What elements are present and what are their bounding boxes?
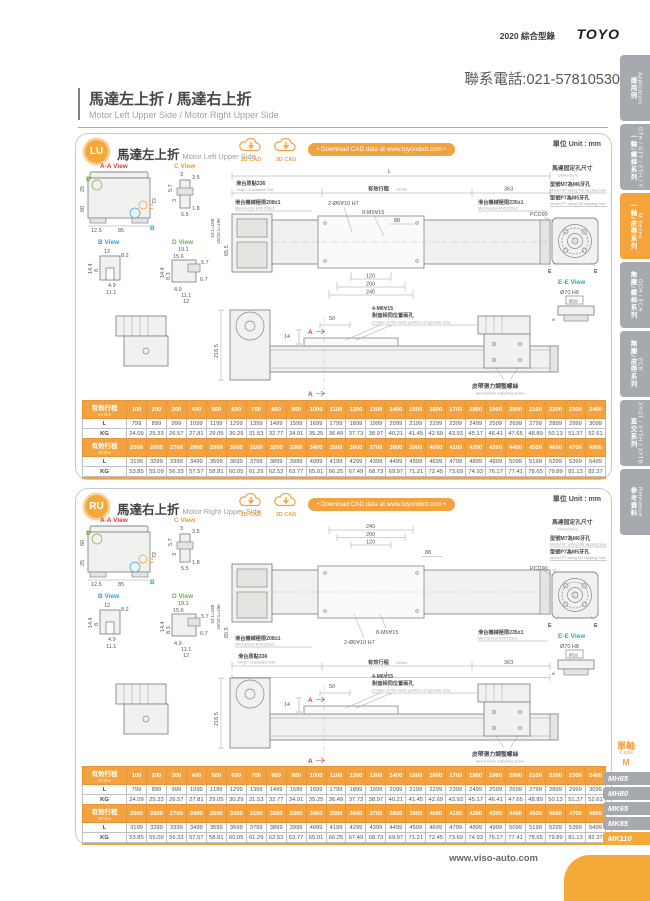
stroke-column-header: 1900 — [486, 767, 506, 785]
stroke-column-header: 2700 — [166, 439, 186, 457]
table-cell: 66.25 — [326, 467, 346, 477]
table-cell: 76.17 — [486, 833, 506, 843]
model-tab-mk65[interactable]: MK65 — [603, 802, 650, 815]
stroke-column-header: 3400 — [306, 805, 326, 823]
c-dim-3: 3 — [180, 172, 183, 178]
hole-callout-1: 2-Ø6∀10 H7 — [328, 200, 359, 207]
stroke-column-header: 1000 — [306, 767, 326, 785]
table-cell: 1799 — [326, 785, 346, 795]
table-cell: 3299 — [146, 823, 166, 833]
stroke-column-header: 1700 — [446, 401, 466, 419]
d-dim-6-7: 6.7 — [200, 277, 208, 283]
stroke-column-header: 1300 — [366, 767, 386, 785]
stroke-column-header: 2500 — [127, 439, 147, 457]
table-cell: 4299 — [346, 457, 366, 467]
stroke-column-header: 4600 — [546, 805, 566, 823]
stroke-column-header: 3800 — [386, 805, 406, 823]
sidebar-tab-ecb[interactable]: 無塵/皮帶系列 ECB — [620, 331, 650, 397]
tab-en-label: Application — [636, 72, 642, 104]
model-tab-mh65[interactable]: MH65 — [603, 772, 650, 785]
sidebar-tab-reference[interactable]: 參考資料 Reference — [620, 469, 650, 535]
stroke-column-header: 3500 — [326, 805, 346, 823]
dim-120: 120 — [366, 274, 375, 280]
stroke-column-header: 4600 — [546, 439, 566, 457]
unit-label: 單位 Unit : mm — [553, 494, 601, 504]
table-cell: 69.97 — [386, 467, 406, 477]
table-cell: 1899 — [346, 785, 366, 795]
table-cell: 57.57 — [186, 467, 206, 477]
table-cell: 1999 — [366, 419, 386, 429]
stroke-column-header: 3900 — [406, 805, 426, 823]
dim-240: 240 — [366, 290, 375, 296]
stroke-column-header: 1800 — [466, 401, 486, 419]
ratio-10-1: 10:1=188 — [210, 218, 215, 238]
table-cell: 40.21 — [386, 795, 406, 805]
dim-240: 240 — [366, 524, 375, 530]
stroke-column-header: 2700 — [166, 805, 186, 823]
table-cell: 63.77 — [286, 833, 306, 843]
table-cell: 42.69 — [426, 429, 446, 439]
table-cell: 5099 — [506, 823, 526, 833]
table-cell: 3799 — [246, 823, 266, 833]
stroke-table: 有效行程Stroke100200300400500600700800900100… — [82, 400, 606, 439]
row-label: KG — [83, 833, 127, 843]
table-cell: 55.09 — [146, 833, 166, 843]
c-view-label: C View — [174, 163, 196, 170]
table-cell: 1899 — [346, 419, 366, 429]
table-cell: 69.97 — [386, 833, 406, 843]
dim-65-5: 65.5 — [224, 245, 230, 256]
stroke-column-header: 3300 — [286, 805, 306, 823]
stroke-column-header: 200 — [146, 767, 166, 785]
d-dim-19-1: 19.1 — [178, 601, 189, 607]
lu-section-panel: LU 馬達左上折Motor Left Upper Side 2D CAD 3D … — [75, 133, 612, 480]
table-cell: 2599 — [486, 785, 506, 795]
stroke-table: 有效行程Stroke250026002700280029003000310032… — [82, 438, 606, 477]
download-cad-pill[interactable]: • Download CAD data at www.toyorobot.com… — [308, 498, 455, 511]
table-cell: 4899 — [466, 823, 486, 833]
table-cell: 31.53 — [246, 795, 266, 805]
dim-50: 50 — [329, 684, 335, 690]
table-cell: 53.85 — [127, 467, 147, 477]
stroke-column-header: 3800 — [386, 439, 406, 457]
table-cell: 77.41 — [506, 467, 526, 477]
row-label: L — [83, 457, 127, 467]
table-cell: 56.33 — [166, 467, 186, 477]
stroke-column-header: 3700 — [366, 439, 386, 457]
stroke-column-header: 2300 — [565, 767, 585, 785]
ru-top-view: 240 200 120 88 8-M6∀15 2-Ø6∀10 H7 — [232, 524, 563, 681]
sidebar-tab-m-series[interactable]: 一軸/皮帶系列 M Series — [620, 193, 650, 259]
table-cell: 3199 — [127, 823, 147, 833]
d-dim-15-6: 15.6 — [173, 608, 184, 614]
mount-title-en: Dimensions — [558, 173, 578, 178]
stroke-column-header: 4100 — [446, 805, 466, 823]
table-cell: 35.25 — [306, 429, 326, 439]
stroke-column-header: 1500 — [406, 767, 426, 785]
b-view: B View 12 8.2 14.4 8 4.9 11.1 — [88, 593, 129, 650]
table-cell: 77.41 — [506, 833, 526, 843]
table-cell: 51.37 — [565, 429, 585, 439]
table-cell: 3399 — [166, 457, 186, 467]
table-cell: 52.61 — [585, 429, 605, 439]
b-view-label: B View — [98, 593, 120, 600]
table-cell: 56.33 — [166, 833, 186, 843]
stroke-column-header: 1100 — [326, 401, 346, 419]
table-cell: 3399 — [166, 823, 186, 833]
ru-side-view: 216.5 14 50 4-M6∀15 對面相同位置兩孔 2 holes on … — [116, 674, 558, 765]
stroke-zh: 有效行程 — [368, 185, 390, 193]
table-cell: 29.05 — [206, 429, 226, 439]
stroke-column-header: 700 — [246, 401, 266, 419]
table-cell: 899 — [146, 785, 166, 795]
c-view: C View 3 3.5 5.7 3 1.8 5.5 — [168, 163, 200, 218]
sidebar-tab-gth-gty-eth-y[interactable]: 一軸/螺桿系列 GTH / GTY / ETH / Y — [620, 124, 650, 190]
model-tab-mk110[interactable]: MK110 — [603, 832, 650, 845]
stroke-column-header: 1100 — [326, 767, 346, 785]
table-cell: 3499 — [186, 457, 206, 467]
table-cell: 37.73 — [346, 795, 366, 805]
tab-en-label: Reference — [636, 487, 642, 517]
tab-zh-label: 無塵/螺桿系列 — [629, 271, 636, 319]
table-cell: 66.25 — [326, 833, 346, 843]
table-cell: 999 — [166, 419, 186, 429]
stroke-header-label: 有效行程Stroke — [83, 805, 127, 823]
table-cell: 2199 — [406, 785, 426, 795]
stroke-column-header: 2500 — [127, 805, 147, 823]
catalog-year-label: 2020 綜合型錄 — [500, 30, 555, 42]
b-marker: B — [150, 579, 155, 586]
table-cell: 65.01 — [306, 467, 326, 477]
table-cell: 3899 — [266, 823, 286, 833]
aa-view-label: A-A View — [100, 517, 129, 524]
table-cell: 45.17 — [466, 429, 486, 439]
table-cell: 68.73 — [366, 833, 386, 843]
hole-callout-2: 8-M6∀15 — [362, 209, 384, 216]
table-cell: 799 — [127, 785, 147, 795]
stroke-column-header: 400 — [186, 401, 206, 419]
stroke-column-header: 100 — [127, 767, 147, 785]
stroke-column-header: 1000 — [306, 401, 326, 419]
table-cell: 24.09 — [127, 795, 147, 805]
b-dim-8-2: 8.2 — [121, 607, 129, 613]
stroke-column-header: 3100 — [246, 805, 266, 823]
stroke-column-header: 4200 — [466, 439, 486, 457]
belt-tension-zh: 皮帶張力調整螺絲 — [471, 382, 519, 390]
stroke-column-header: 400 — [186, 767, 206, 785]
section-a-bottom: A — [308, 391, 313, 398]
table-cell: 43.93 — [446, 429, 466, 439]
table-cell: 4499 — [386, 457, 406, 467]
table-cell: 53.85 — [127, 833, 147, 843]
d-dim-19-1: 19.1 — [178, 247, 189, 253]
b-view-label: B View — [98, 239, 120, 246]
table-cell: 63.77 — [286, 467, 306, 477]
table-cell: 1599 — [286, 419, 306, 429]
stroke-column-header: 2100 — [526, 767, 546, 785]
stroke-column-header: 4000 — [426, 439, 446, 457]
table-cell: 30.29 — [226, 429, 246, 439]
contact-phone: 聯系電話:021-57810530 — [464, 68, 620, 89]
stroke-column-header: 2900 — [206, 439, 226, 457]
dim-72: 72 — [152, 552, 158, 558]
table-cell: 45.17 — [466, 795, 486, 805]
table-cell: 1399 — [246, 419, 266, 429]
side-holes-en: 2 holes on the same position at opposite… — [372, 320, 451, 325]
table-cell: 4099 — [306, 457, 326, 467]
mech1-en: Mechanical limit:208±1 — [235, 206, 275, 211]
table-cell: 2699 — [506, 419, 526, 429]
p7-en: Model P7 using M5 tapping hole — [550, 201, 606, 206]
table-cell: 57.57 — [186, 833, 206, 843]
table-cell: 5399 — [565, 457, 585, 467]
stroke-column-header: 4200 — [466, 805, 486, 823]
d-marker: D — [86, 176, 91, 183]
c-dim-5-7: 5.7 — [168, 538, 174, 546]
side-holes-callout: 4-M6∀15 — [372, 674, 393, 680]
b-dim-8-2: 8.2 — [121, 253, 129, 259]
table-cell: 5499 — [585, 457, 605, 467]
stroke-column-header: 1200 — [346, 767, 366, 785]
table-cell: 43.93 — [446, 795, 466, 805]
d-dim-6-7: 6.7 — [200, 631, 208, 637]
stroke-column-header: 800 — [266, 401, 286, 419]
ee-view-label: E-E View — [558, 279, 586, 286]
c-dim-5-7: 5.7 — [168, 184, 174, 192]
stroke-column-header: 2800 — [186, 439, 206, 457]
m7-en: Model M7 using M6 tapping hole — [550, 542, 606, 547]
stroke-column-header: 1400 — [386, 401, 406, 419]
sidebar-tab-application[interactable]: 應用例 Application — [620, 55, 650, 121]
table-cell: 5299 — [546, 457, 566, 467]
table-cell: 62.53 — [266, 467, 286, 477]
d-dim-12: 12 — [183, 299, 189, 305]
page-title: 馬達左上折 / 馬達右上折 Motor Left Upper Side / Mo… — [78, 88, 279, 120]
table-cell: 2899 — [546, 785, 566, 795]
table-cell: 3499 — [186, 823, 206, 833]
c-dim-3-5: 3.5 — [192, 175, 200, 181]
stroke-table: 有效行程Stroke250026002700280029003000310032… — [82, 804, 606, 843]
table-cell: 3699 — [226, 823, 246, 833]
stroke-column-header: 4500 — [526, 805, 546, 823]
table-cell: 29.05 — [206, 795, 226, 805]
lu-top-view: L 滑台原點336 Origin of actuator:336 有效行程 St… — [232, 169, 563, 299]
b-dim-12: 12 — [104, 249, 110, 255]
lu-technical-drawing: A-A View D C B 25 60 72 12.5 85 C View — [80, 158, 608, 398]
c-dim-3b: 3 — [172, 199, 178, 202]
side-holes-zh: 對面相同位置兩孔 — [372, 679, 414, 687]
stroke-zh: 有效行程 — [368, 658, 390, 666]
sidebar-tab-xy-series[interactable]: 直交系列 XYOT / XYTH / XYTB — [620, 400, 650, 466]
table-cell: 55.09 — [146, 467, 166, 477]
table-cell: 41.45 — [406, 795, 426, 805]
ru-stroke-table-1: 有效行程Stroke100200300400500600700800900100… — [82, 766, 606, 807]
tab-zh-label: 直交系列 — [629, 418, 636, 448]
stroke-column-header: 4100 — [446, 439, 466, 457]
stroke-column-header: 4700 — [565, 805, 585, 823]
table-cell: 5199 — [526, 457, 546, 467]
stroke-column-header: 2100 — [526, 401, 546, 419]
table-cell: 4699 — [426, 457, 446, 467]
table-cell: 72.45 — [426, 467, 446, 477]
table-cell: 2499 — [466, 419, 486, 429]
stroke-column-header: 2800 — [186, 805, 206, 823]
table-cell: 5099 — [506, 457, 526, 467]
stroke-column-header: 4700 — [565, 439, 585, 457]
table-cell: 4699 — [426, 823, 446, 833]
table-cell: 1599 — [286, 785, 306, 795]
dim-14: 14 — [284, 334, 290, 340]
table-cell: 3999 — [286, 457, 306, 467]
stroke-column-header: 2300 — [565, 401, 585, 419]
stroke-column-header: 4400 — [506, 805, 526, 823]
table-cell: 62.53 — [266, 833, 286, 843]
stroke-header-label: 有效行程Stroke — [83, 401, 127, 419]
table-cell: 4599 — [406, 457, 426, 467]
table-cell: 30.29 — [226, 795, 246, 805]
aa-view: A-A View D C B 25 60 72 12.5 85 — [80, 163, 158, 234]
table-cell: 2299 — [426, 785, 446, 795]
stroke-column-header: 4300 — [486, 439, 506, 457]
c-marker: C — [149, 204, 154, 211]
model-nav-header: 單軸 1 axis M — [602, 742, 650, 767]
dim-25: 25 — [80, 186, 86, 192]
stroke-column-header: 1600 — [426, 401, 446, 419]
model-tab-mh80[interactable]: MH80 — [603, 787, 650, 800]
d-view: D View 19.1 15.6 5.7 14.4 8.3 4.9 6.7 11… — [160, 593, 209, 659]
dim-85: 85 — [118, 582, 124, 588]
stroke-column-header: 3200 — [266, 805, 286, 823]
table-cell: 899 — [146, 419, 166, 429]
row-label: KG — [83, 429, 127, 439]
stroke-column-header: 600 — [226, 767, 246, 785]
tab-en-label: GCH / ECH — [636, 279, 642, 312]
dim-88: 88 — [394, 218, 400, 224]
table-cell: 67.49 — [346, 833, 366, 843]
table-cell: 78.65 — [526, 833, 546, 843]
b-marker: B — [150, 225, 155, 232]
c-dim-3b: 3 — [172, 553, 178, 556]
b-dim-4-9: 4.9 — [108, 637, 116, 643]
ratio-15-20: 15/20:1=196 — [216, 218, 221, 244]
d-marker: D — [86, 530, 91, 537]
stroke-column-header: 2600 — [146, 805, 166, 823]
table-cell: 65.01 — [306, 833, 326, 843]
table-cell: 26.57 — [166, 429, 186, 439]
table-cell: 2899 — [546, 419, 566, 429]
table-cell: 3599 — [206, 457, 226, 467]
stroke-column-header: 700 — [246, 767, 266, 785]
stroke-column-header: 3600 — [346, 805, 366, 823]
table-cell: 25.33 — [146, 795, 166, 805]
c-dim-3: 3 — [180, 526, 183, 532]
table-cell: 1099 — [186, 419, 206, 429]
stroke-column-header: 1700 — [446, 767, 466, 785]
aa-view: A-A View D C B 60 25 72 12.5 85 — [80, 517, 158, 588]
series-letter: M — [602, 758, 650, 767]
stroke-column-header: 3500 — [326, 439, 346, 457]
dim-14: 14 — [284, 702, 290, 708]
table-cell: 3899 — [266, 457, 286, 467]
table-cell: 36.49 — [326, 429, 346, 439]
b-dim-11-1: 11.1 — [106, 644, 116, 650]
table-cell: 4499 — [386, 823, 406, 833]
c-view: C View 3 3.5 5.7 3 1.8 5.5 — [168, 517, 200, 572]
table-cell: 5199 — [526, 823, 546, 833]
stroke-column-header: 3200 — [266, 439, 286, 457]
dim-72: 72 — [152, 198, 158, 204]
unit-label: 單位 Unit : mm — [553, 139, 601, 149]
table-cell: 1299 — [226, 419, 246, 429]
side-holes-callout: 4-M6∀15 — [372, 306, 393, 312]
dim-o19: Ø19 — [569, 299, 578, 304]
m7-en: Model M7 using M6 tapping hole — [550, 188, 606, 193]
d-view-label: D View — [172, 239, 194, 246]
table-cell: 2399 — [446, 785, 466, 795]
pcd90-label: PCD90 — [530, 566, 548, 572]
table-cell: 42.69 — [426, 795, 446, 805]
tab-zh-label: 無塵/皮帶系列 — [629, 340, 636, 388]
table-cell: 3799 — [246, 457, 266, 467]
lu-side-view: 216.5 14 50 4-M6∀15 對面相同位置兩孔 2 holes on … — [116, 306, 558, 398]
table-cell: 2999 — [565, 785, 585, 795]
table-cell: 999 — [166, 785, 186, 795]
table-cell: 2599 — [486, 419, 506, 429]
table-cell: 5399 — [565, 823, 585, 833]
table-cell: 5299 — [546, 823, 566, 833]
table-cell: 58.81 — [206, 467, 226, 477]
table-cell: 34.01 — [286, 429, 306, 439]
dim-60: 60 — [80, 206, 86, 212]
stroke-column-header: 4300 — [486, 805, 506, 823]
stroke-column-header: 4800 — [585, 439, 605, 457]
stroke-column-header: 500 — [206, 767, 226, 785]
table-cell: 3299 — [146, 457, 166, 467]
table-cell: 2399 — [446, 419, 466, 429]
table-cell: 78.65 — [526, 467, 546, 477]
table-cell: 1299 — [226, 785, 246, 795]
table-cell: 1199 — [206, 419, 226, 429]
table-cell: 1399 — [246, 785, 266, 795]
stroke-column-header: 3600 — [346, 439, 366, 457]
table-cell: 60.05 — [226, 467, 246, 477]
stroke-column-header: 2000 — [506, 401, 526, 419]
page-corner-decoration — [564, 855, 650, 901]
table-cell: 2099 — [386, 785, 406, 795]
table-cell: 4099 — [306, 823, 326, 833]
table-cell: 26.57 — [166, 795, 186, 805]
dim-216-5: 216.5 — [214, 344, 220, 358]
dim-65-5: 65.5 — [224, 627, 230, 638]
model-tab-mk85[interactable]: MK85 — [603, 817, 650, 830]
table-cell: 48.89 — [526, 795, 546, 805]
table-cell: 74.93 — [466, 833, 486, 843]
sidebar-tab-gch-ech[interactable]: 無塵/螺桿系列 GCH / ECH — [620, 262, 650, 328]
d-dim-5-7: 5.7 — [201, 614, 209, 620]
lu-stroke-table-2: 有效行程Stroke250026002700280029003000310032… — [82, 438, 606, 479]
dim-85: 85 — [118, 228, 124, 234]
table-cell: 2099 — [386, 419, 406, 429]
row-label: KG — [83, 795, 127, 805]
table-cell: 27.81 — [186, 429, 206, 439]
stroke-header-label: 有效行程Stroke — [83, 439, 127, 457]
table-cell: 76.17 — [486, 467, 506, 477]
download-cad-pill[interactable]: • Download CAD data at www.toyorobot.com… — [308, 143, 455, 156]
stroke-column-header: 1400 — [386, 767, 406, 785]
belt-tension-en: Belt tension adjusting screw. — [476, 391, 525, 396]
table-cell: 4299 — [346, 823, 366, 833]
dim-L: L — [388, 169, 391, 175]
